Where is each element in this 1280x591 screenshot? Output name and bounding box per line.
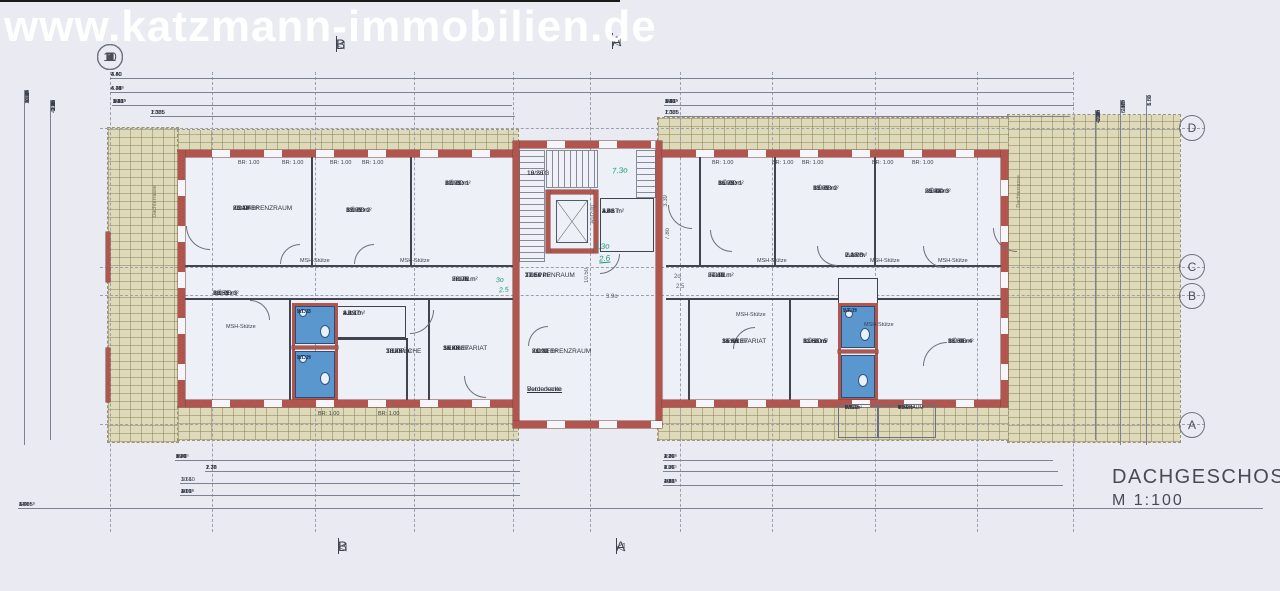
stair-flight-top [546, 150, 598, 188]
watermark: www.katzmann-immobilien.de [4, 2, 644, 52]
stair-dim-1050: 10.50 [584, 268, 590, 283]
dim-label: 4.40 [110, 72, 123, 78]
wall [311, 156, 313, 266]
wc-divider-left [292, 346, 338, 349]
column-label: MSH-Stütze [226, 324, 256, 330]
dim-col-left-2: 1.10104.64⁵3.311.262.761.451.932.331.422… [50, 100, 59, 440]
column-label: MSH-Stütze [870, 258, 900, 264]
dim-label: 17⁵ [663, 465, 673, 471]
parapet-label: BR: 1.00 [712, 160, 733, 166]
column-label: MSH-Stütze [736, 312, 766, 318]
wall [338, 338, 408, 340]
pencil-note-25: 2.5 [676, 284, 684, 290]
elevator-wall-top [546, 190, 598, 194]
column-label: MSH-Stütze [757, 258, 787, 264]
dim-row-top-1: 4.404.404.404.403.503.504.404.404.404.40 [110, 70, 1073, 79]
drawing-scale: M 1:100 [1112, 492, 1184, 510]
outer-wall-bottom-left-wing [178, 400, 518, 407]
dim-col-right-2: 17⁵1.106.01⁵1.455.47⁵10 [1120, 100, 1129, 445]
parapet-label: BR: 1.00 [238, 160, 259, 166]
column-label: MSH-Stütze [400, 258, 430, 264]
dim-label: 17⁵ [664, 110, 674, 116]
stair-core-wall-right [656, 141, 662, 428]
parapet-label: BR: 1.00 [872, 160, 893, 166]
parapet-label: BR: 1.00 [912, 160, 933, 166]
dim-label: 2.30 [205, 465, 218, 471]
parapet-label: BR: 1.00 [772, 160, 793, 166]
dim-label: 17⁵ [18, 502, 28, 508]
column-label: MSH-Stütze [864, 322, 894, 328]
dim-label: 10 [663, 479, 671, 485]
toilet-icon [860, 328, 870, 341]
dim-label: 2.30 [150, 110, 163, 116]
outer-wall-top-left-wing [178, 150, 518, 157]
grid-line-B [100, 295, 1205, 296]
pencil-note-780: 7.8o [665, 228, 671, 240]
elevator-cabin [556, 200, 588, 243]
terrace-label-left: Dachterrasse [152, 185, 158, 218]
stair-flight-left [519, 150, 545, 262]
dim-label: 10.60 [180, 477, 196, 483]
outer-wall-east [1001, 150, 1008, 407]
grid-row-circle-B: B [1179, 283, 1205, 309]
dim-row-bottom-3-left: 3.6110.60 [180, 475, 520, 484]
dim-row-top-3-right: 1.011.031.13⁵2.631.13⁵301.13⁵971.13⁵301.… [664, 97, 1074, 106]
outer-wall-top-right-wing [662, 150, 1008, 157]
section-marker-b-bottom: B◁ [338, 538, 347, 554]
dim-row-bottom-1-left: 27⁵1.271.263.20⁵1.262.301.2669⁵1.26901.0… [175, 452, 520, 461]
terrace-strip-top-left [178, 130, 518, 151]
green-note-730-top: 7.3o [612, 165, 628, 175]
wall [184, 265, 513, 267]
dim-row-top-4-left: 17⁵1.1351.1351.1351.1351.1352.30 [150, 108, 515, 117]
dim-label: 1.10 [51, 100, 57, 111]
wall [184, 298, 513, 300]
grid-row-circle-D: D [1179, 115, 1205, 141]
toilet-icon [320, 325, 330, 338]
dim-row-bottom-3-right: 4.352.68⁵101.51⁵101.15104.22⁵17⁵10 [663, 477, 1063, 486]
parapet-label: BR: 1.00 [802, 160, 823, 166]
dim-row-bottom-2-right: 4.352.762.761.769.97⁵2.7617⁵ [663, 463, 1058, 472]
wall [410, 156, 412, 266]
toilet-icon [320, 372, 330, 385]
dim-row-top-3-left: 3.06⁵2.411.13⁵301.13⁵971.13⁵301.13⁵2.631… [112, 97, 512, 106]
wall [688, 300, 690, 401]
dim-row-top-2: 4.41⁵4.304.304.356.444.354.304.304.41⁵ [110, 84, 1073, 93]
dim-label: 1.01 [112, 99, 125, 105]
stair-core-wall-top [513, 141, 662, 148]
dim-row-bottom-2-left: 2.761.1⁹1.762.762.762.30 [205, 463, 520, 472]
toilet-icon [858, 374, 868, 387]
wc-divider-right [838, 350, 878, 353]
column-label: MSH-Stütze [938, 258, 968, 264]
parapet-label: BR: 1.00 [362, 160, 383, 166]
floor-plan-sheet: Aufzug [0, 0, 1280, 591]
green-note-730-mid: 7.3o [594, 241, 610, 251]
pencil-note-2o: 2o [674, 274, 681, 280]
dim-row-bottom-total: 17⁵3.06⁵14.85⁵6.4914.85⁵3.06⁵17⁵ [18, 500, 1263, 509]
parapet-label: BR: 1.00 [330, 160, 351, 166]
dim-label: 10 [1121, 100, 1127, 106]
grid-row-circle-A: A [1179, 412, 1205, 438]
roof-terrace-left [108, 128, 178, 442]
stair-dim-339: 3.39 [663, 195, 669, 207]
grid-line-11 [1073, 72, 1074, 532]
dim-row-top-4-right: 2.301.1351.1351.1351.1351.13517⁵ [664, 108, 1070, 117]
grid-line-1 [110, 72, 111, 532]
dim-label: 17⁵ [1096, 110, 1102, 118]
wall [289, 300, 291, 401]
dim-label: 4.41⁵ [110, 86, 125, 92]
section-marker-a-bottom: A◁ [616, 538, 625, 554]
room-gard-box [838, 278, 878, 304]
dim-label: 1.27⁵ [25, 90, 31, 103]
column-label: MSH-Stütze [300, 258, 330, 264]
outer-wall-west [178, 150, 185, 407]
wall [789, 300, 791, 401]
terrace-wall-segment [106, 348, 110, 402]
wall [699, 156, 701, 266]
grid-line-C [100, 267, 1205, 268]
dim-col-right-1: 1.10104.64⁵2.761.651.452.764.09⁵17⁵ [1095, 110, 1104, 440]
parapet-label: BR: 1.00 [318, 411, 339, 417]
terrace-strip-top-right [658, 118, 1008, 151]
stair-flight-right [636, 150, 656, 198]
parapet-label: BR: 1.00 [378, 411, 399, 417]
elevator-wall-bottom [546, 249, 598, 253]
dim-col-left-1: 1.27⁵1.104.64⁵10.945.64⁵2.581.101.27⁵ [24, 90, 33, 445]
green-note-3o: 3o [496, 277, 504, 285]
dim-label: 5.51 [1147, 95, 1153, 106]
wall [666, 298, 1001, 300]
dim-label: 3.63⁵ [180, 489, 195, 495]
dim-col-right-3: 6.001.505.51 [1146, 95, 1155, 445]
pencil-note-390: 3.9o [606, 294, 618, 300]
grid-line-D [100, 128, 1205, 129]
parapet-label: BR: 1.00 [282, 160, 303, 166]
dim-label: 3.06⁵ [664, 99, 679, 105]
wall [874, 156, 876, 266]
stair-core-wall-left [513, 141, 519, 428]
terrace-label-right: Dachterrasse [1016, 175, 1022, 208]
drawing-title: DACHGESCHOSS [1112, 466, 1280, 489]
outer-wall-bottom-right-wing [662, 400, 1008, 407]
wall [774, 156, 776, 266]
elevator-label: Aufzug [590, 205, 596, 224]
terrace-wall-segment [106, 232, 110, 282]
dim-row-bottom-4-left: 3.61101.00101.51⁵204.06⁵103.63⁵ [180, 487, 520, 496]
elevator-wall-left [546, 190, 550, 253]
dim-label: 1.01 [175, 454, 188, 460]
green-note-25: 2.5 [499, 287, 509, 295]
stair-core-wall-bottom [513, 421, 662, 428]
dim-row-bottom-1-right: 2.171.262.19⁵1.26491.263.00⁵1.261.70 [663, 452, 1053, 461]
grid-row-circle-C: C [1179, 254, 1205, 280]
dim-label: 1.70 [663, 454, 676, 460]
green-note-26: 2.6 [599, 254, 611, 264]
